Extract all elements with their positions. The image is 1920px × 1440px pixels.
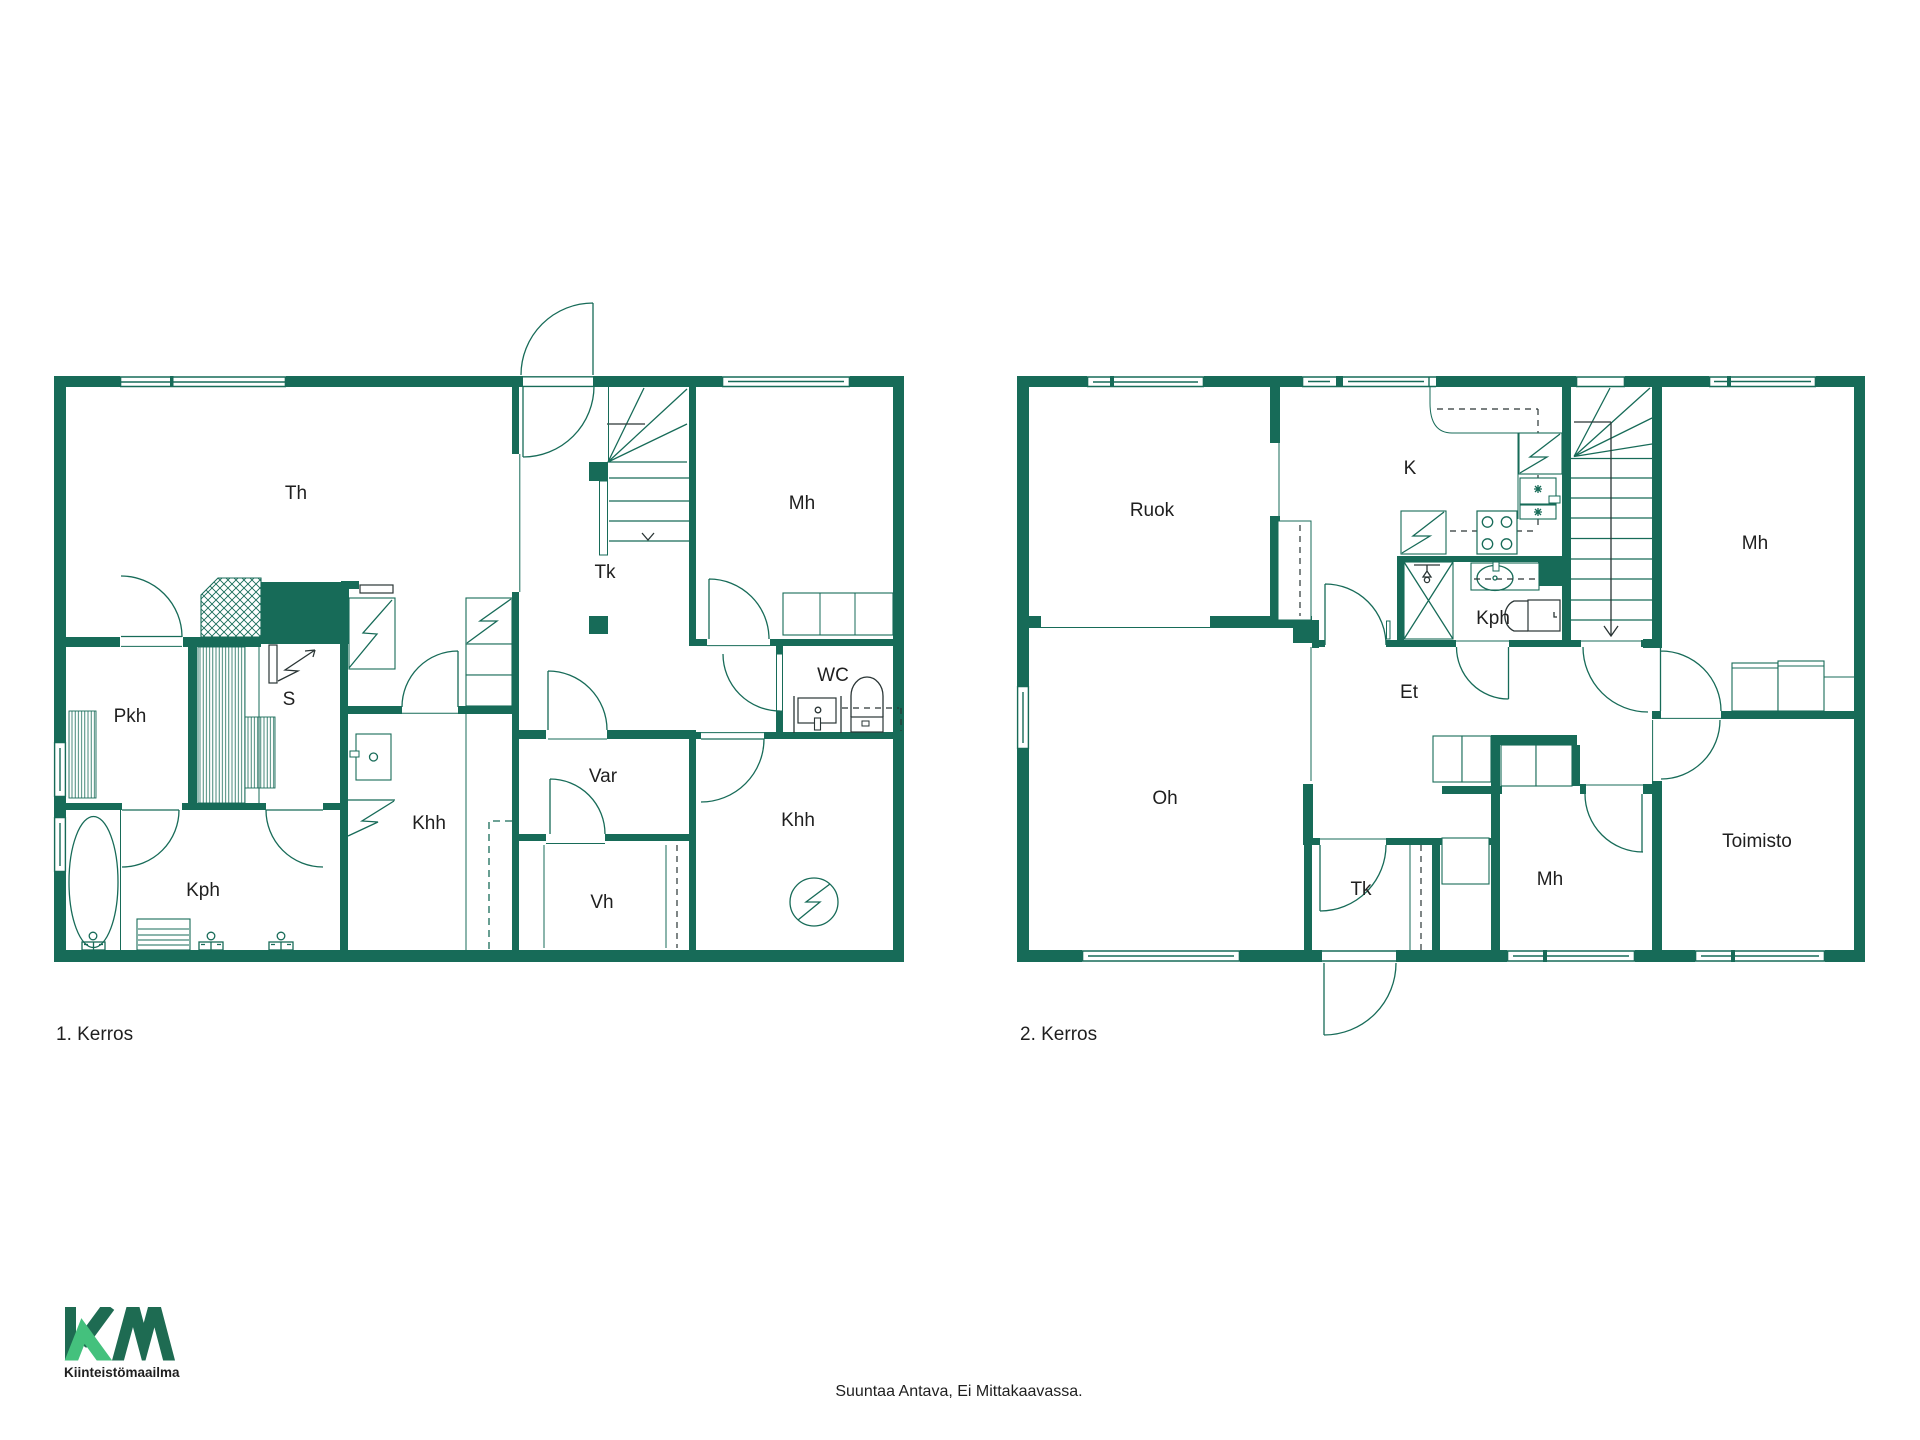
svg-text:S: S [283, 689, 296, 710]
svg-text:Mh: Mh [1742, 533, 1768, 554]
svg-text:Vh: Vh [590, 892, 613, 913]
svg-text:Th: Th [285, 483, 307, 504]
svg-text:Tk: Tk [1350, 879, 1372, 900]
svg-text:2. Kerros: 2. Kerros [1020, 1024, 1097, 1045]
svg-text:Pkh: Pkh [114, 706, 147, 727]
svg-text:Et: Et [1400, 682, 1419, 703]
svg-text:Khh: Khh [781, 810, 815, 831]
svg-text:K: K [1404, 458, 1417, 479]
svg-text:Kph: Kph [186, 880, 220, 901]
svg-text:Kph: Kph [1476, 608, 1510, 629]
svg-text:Kiinteistömaailma: Kiinteistömaailma [64, 1365, 180, 1380]
svg-text:Toimisto: Toimisto [1722, 831, 1792, 852]
svg-text:Suuntaa Antava, Ei Mittakaavas: Suuntaa Antava, Ei Mittakaavassa. [835, 1383, 1082, 1400]
svg-text:Var: Var [589, 766, 618, 787]
svg-text:Ruok: Ruok [1130, 500, 1175, 521]
svg-text:WC: WC [817, 665, 849, 686]
svg-text:Khh: Khh [412, 813, 446, 834]
svg-text:1. Kerros: 1. Kerros [56, 1024, 133, 1045]
svg-text:Mh: Mh [1537, 869, 1563, 890]
svg-text:Oh: Oh [1152, 788, 1177, 809]
svg-text:Mh: Mh [789, 493, 815, 514]
svg-text:Tk: Tk [594, 562, 616, 583]
